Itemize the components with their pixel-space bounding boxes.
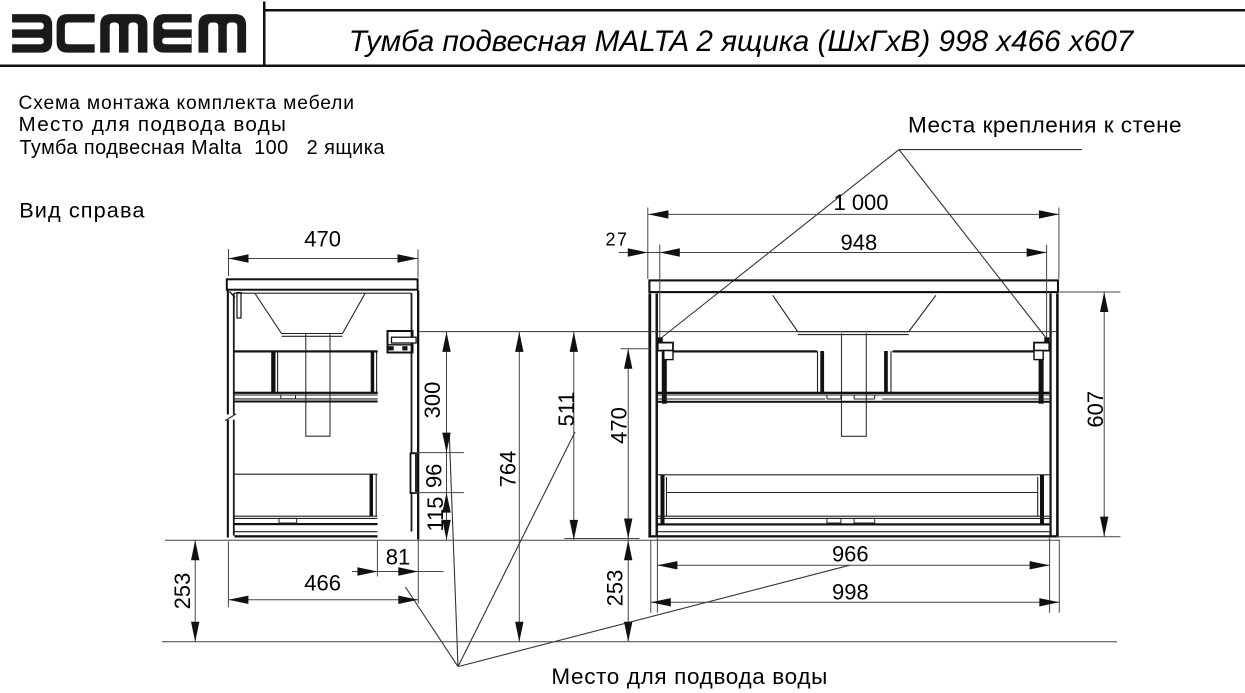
svg-text:1 000: 1 000 xyxy=(833,190,888,215)
svg-text:253: 253 xyxy=(170,573,195,610)
svg-text:115: 115 xyxy=(423,496,448,531)
svg-text:81: 81 xyxy=(386,545,410,570)
svg-text:764: 764 xyxy=(496,451,521,488)
svg-text:Вид справа: Вид справа xyxy=(19,197,145,222)
svg-text:Место для подвода воды: Место для подвода воды xyxy=(551,664,828,689)
svg-text:966: 966 xyxy=(832,541,869,566)
svg-text:998: 998 xyxy=(832,579,869,604)
svg-text:96: 96 xyxy=(422,464,447,488)
svg-text:470: 470 xyxy=(607,407,632,444)
svg-text:27: 27 xyxy=(605,230,628,250)
svg-text:253: 253 xyxy=(602,570,627,607)
svg-text:Схема монтажа комплекта мебели: Схема монтажа комплекта мебели xyxy=(19,93,355,114)
svg-text:511: 511 xyxy=(554,391,579,426)
svg-text:466: 466 xyxy=(304,571,341,596)
svg-text:300: 300 xyxy=(420,382,445,419)
svg-text:607: 607 xyxy=(1083,391,1108,428)
svg-text:Места крепления к стене: Места крепления к стене xyxy=(908,113,1182,138)
svg-text:Место для подвода воды: Место для подвода воды xyxy=(19,113,288,136)
svg-text:470: 470 xyxy=(304,227,341,252)
svg-text:Тумба подвесная Malta 100 2: Тумба подвесная Malta 100 2 ящика xyxy=(19,137,385,159)
svg-text:948: 948 xyxy=(841,230,878,255)
svg-text:Тумба подвесная MALTA 2 ящика: Тумба подвесная MALTA 2 ящика (ШхГхВ) 99… xyxy=(349,25,1135,58)
